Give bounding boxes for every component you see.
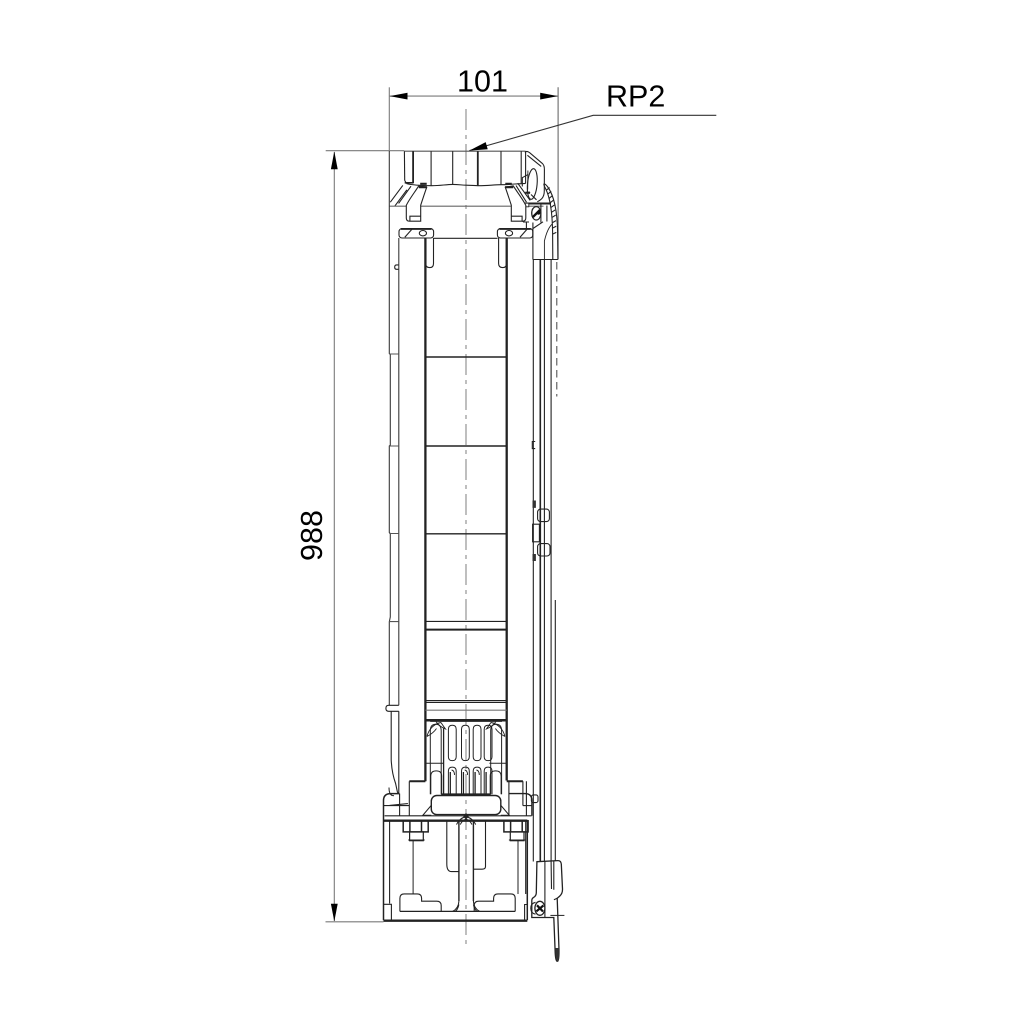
svg-text:RP2: RP2 (606, 80, 665, 114)
svg-text:988: 988 (295, 510, 329, 561)
svg-text:101: 101 (457, 65, 508, 99)
